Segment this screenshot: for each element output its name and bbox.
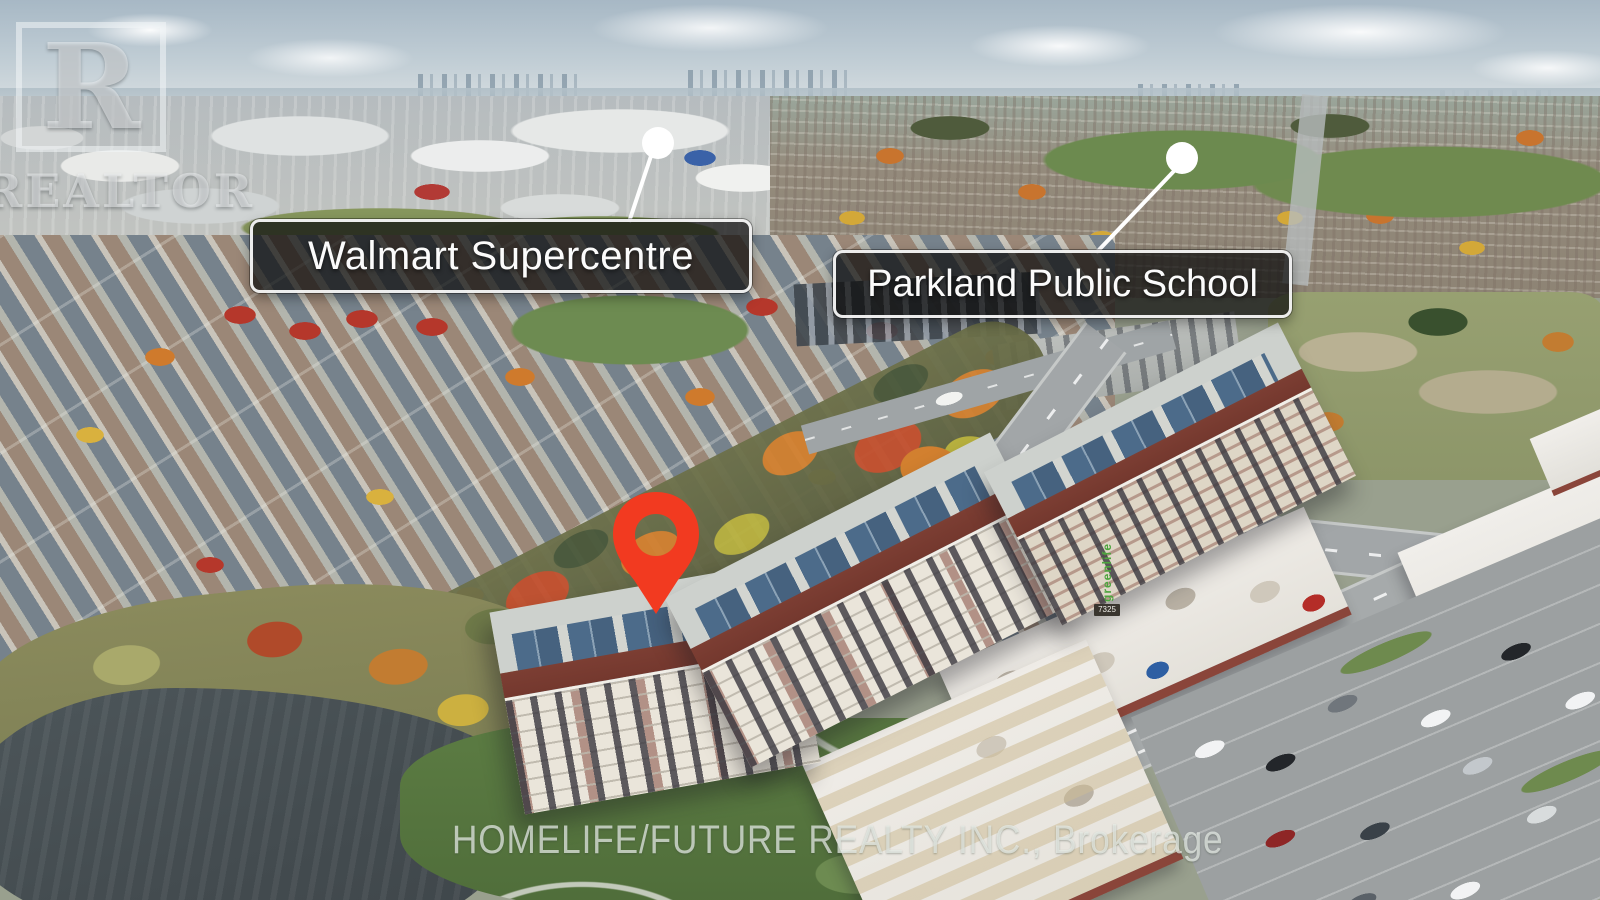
realtor-watermark: R REALTOR: [0, 0, 260, 240]
callout-dot-school-icon: [1166, 142, 1198, 174]
callout-label-school: Parkland Public School: [833, 250, 1292, 318]
map-pin-icon: [613, 492, 699, 614]
callout-text-walmart: Walmart Supercentre: [308, 234, 694, 279]
realtor-logo-letter: R: [42, 28, 140, 146]
callout-label-walmart: Walmart Supercentre: [250, 219, 752, 293]
aerial-photo: greenlife 7325 Walmart Supercentre Parkl…: [0, 0, 1600, 900]
realtor-logo-text: REALTOR: [0, 164, 255, 218]
callout-text-school: Parkland Public School: [867, 263, 1258, 306]
callout-line-school: [1096, 171, 1174, 253]
callout-dot-walmart-icon: [642, 127, 674, 159]
callout-line-walmart: [629, 156, 651, 222]
brokerage-watermark: HOMELIFE/FUTURE REALTY INC., Brokerage: [452, 818, 1224, 863]
realtor-logo-icon: R: [16, 22, 166, 152]
